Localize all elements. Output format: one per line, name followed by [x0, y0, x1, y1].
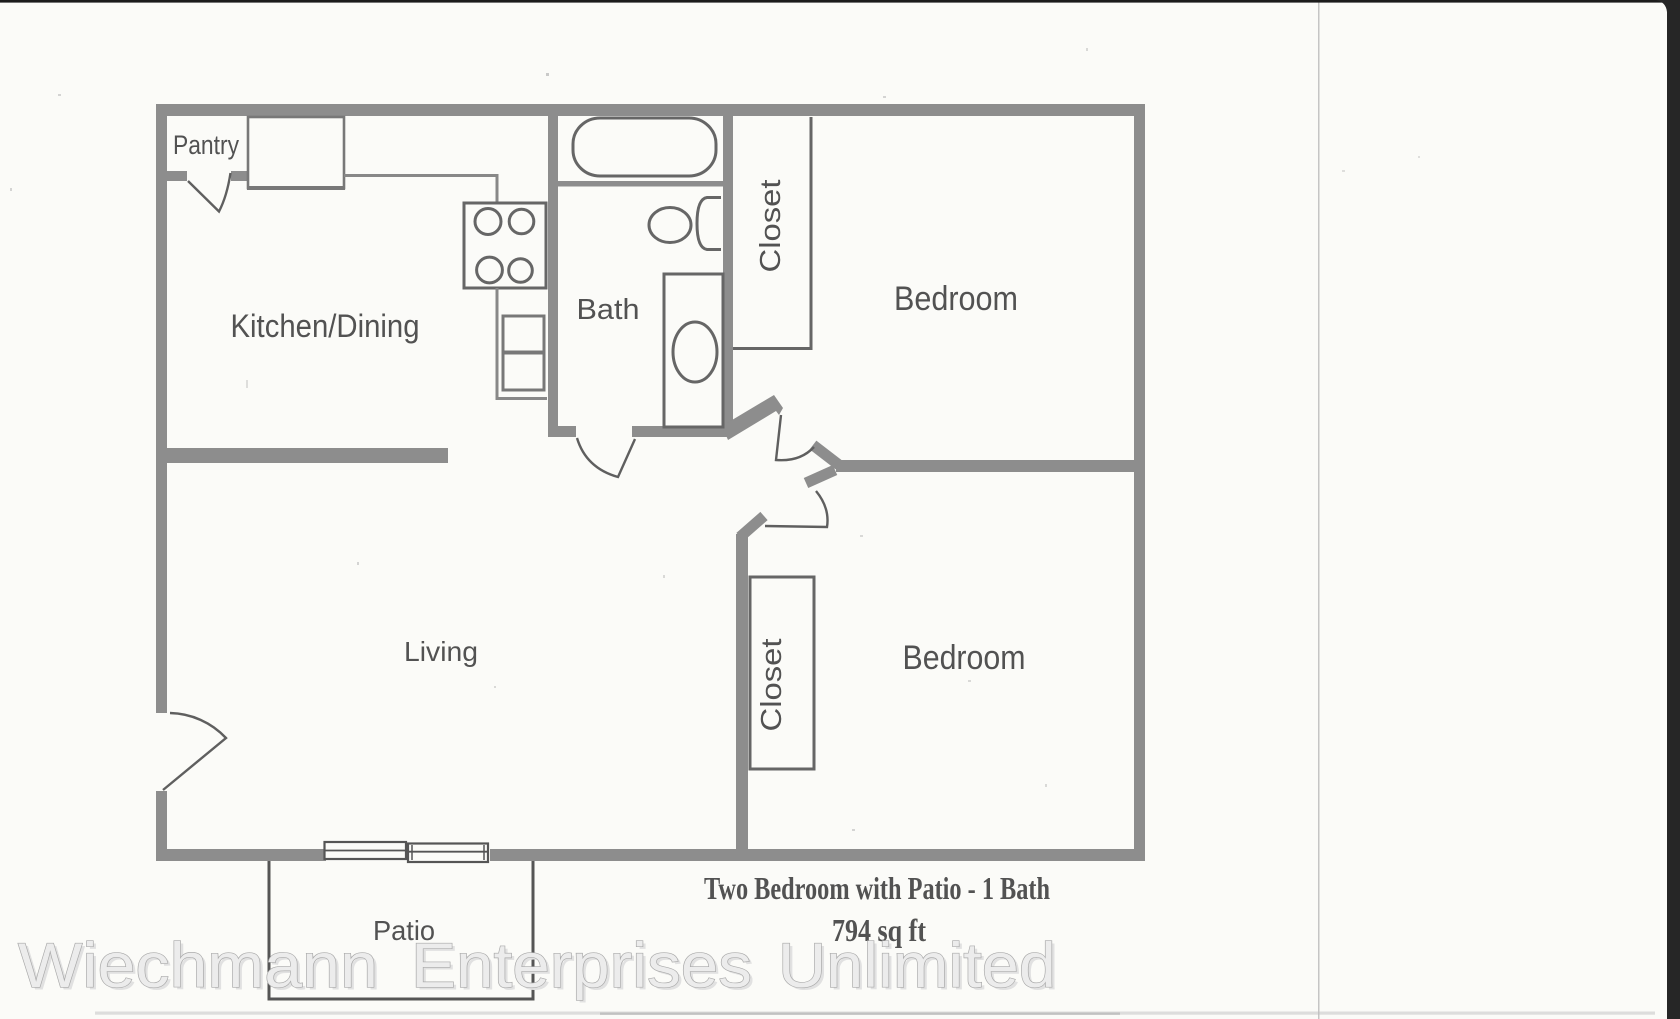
svg-text:Living: Living	[404, 636, 478, 667]
svg-text:Pantry: Pantry	[173, 130, 239, 160]
svg-text:Bedroom: Bedroom	[903, 639, 1026, 677]
svg-text:Wiechmann: Wiechmann	[18, 931, 378, 1001]
svg-text:Two Bedroom with Patio - 1 Bat: Two Bedroom with Patio - 1 Bath	[704, 870, 1050, 906]
svg-text:Unlimited: Unlimited	[778, 931, 1056, 1001]
svg-text:Closet: Closet	[756, 639, 788, 732]
svg-text:Bedroom: Bedroom	[894, 280, 1018, 318]
svg-text:Kitchen/Dining: Kitchen/Dining	[231, 308, 420, 344]
svg-text:Closet: Closet	[755, 180, 787, 273]
svg-text:Bath: Bath	[577, 294, 640, 326]
svg-text:Enterprises: Enterprises	[411, 931, 752, 1001]
